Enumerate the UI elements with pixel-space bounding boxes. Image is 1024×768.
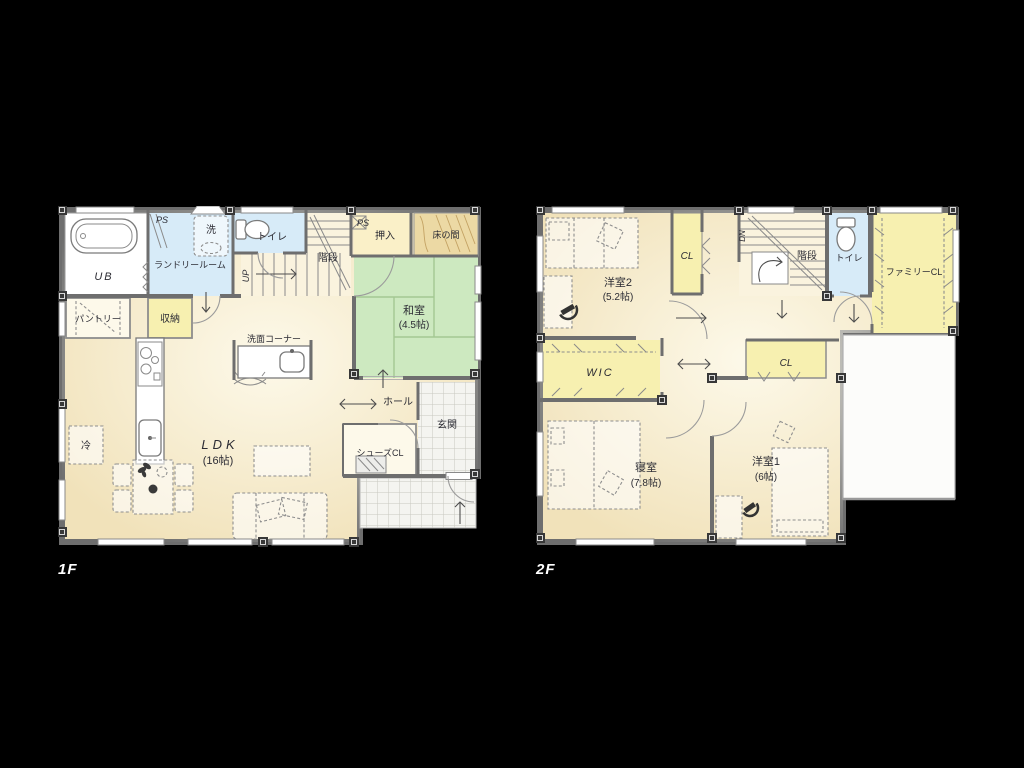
- toilet-bowl-2f: [837, 218, 855, 251]
- label-tokonoma: 床の間: [432, 229, 459, 240]
- label-toilet-1f: トイレ: [257, 232, 287, 243]
- label-laundry: ランドリールーム: [154, 260, 226, 270]
- label-ps-right: PS: [357, 218, 369, 228]
- living-table: [254, 446, 310, 476]
- label-ps-left: PS: [156, 215, 168, 225]
- label-ldk: LDK: [201, 437, 238, 452]
- floorplan-image: UB PS 洗 ランドリールーム トイレ 階段 UP PS 押入 床の間 和室 …: [0, 0, 1024, 768]
- sofa: [233, 493, 327, 539]
- label-washitsu-size: (4.5帖): [399, 318, 430, 331]
- roof-area: [843, 335, 955, 499]
- label-cl-center: CL: [780, 358, 793, 369]
- label-stairs-dir-2f: DN: [738, 230, 747, 242]
- label-yoshitsu1-size: (6帖): [755, 470, 777, 483]
- label-wic: WIC: [586, 367, 613, 379]
- label-washer: 洗: [206, 224, 216, 236]
- label-yoshitsu2-size: (5.2帖): [603, 290, 634, 303]
- label-stairs-2f: 階段: [797, 249, 817, 262]
- floor-tag-1f: 1F: [58, 561, 78, 578]
- stairs-upper-1f: [306, 213, 351, 253]
- label-shinshitsu-size: (7.8帖): [631, 476, 662, 489]
- label-oshiire: 押入: [375, 229, 395, 242]
- label-genkan: 玄関: [437, 418, 457, 431]
- label-washitsu: 和室: [403, 303, 425, 317]
- washing-machine: [194, 216, 228, 256]
- label-ldk-size: (16帖): [203, 454, 234, 467]
- label-family-cl: ファミリーCL: [886, 267, 943, 277]
- label-yoshitsu2: 洋室2: [604, 275, 632, 289]
- label-shinshitsu: 寝室: [635, 460, 657, 474]
- label-yoshitsu1: 洋室1: [752, 454, 780, 468]
- label-stairs-1f: 階段: [318, 251, 338, 264]
- label-shoes-cl: シューズCL: [356, 447, 403, 458]
- label-hall: ホール: [383, 396, 413, 408]
- label-toilet-2f: トイレ: [835, 253, 862, 263]
- label-pantry: パントリー: [75, 314, 120, 324]
- label-ub: UB: [94, 271, 113, 283]
- floor-tag-2f: 2F: [536, 561, 556, 578]
- label-cl-north: CL: [681, 251, 694, 262]
- floor-plan-2f: 洋室2 (5.2帖) CL 階段 DN トイレ ファミリーCL WIC CL 寝…: [536, 206, 966, 551]
- bathtub: [71, 219, 137, 253]
- kitchen-counter: [136, 338, 164, 464]
- room-washitsu: [354, 256, 478, 378]
- label-fridge: 冷: [81, 439, 91, 452]
- label-storage: 収納: [160, 312, 180, 325]
- label-stairs-dir-1f: UP: [241, 270, 251, 283]
- master-bed: [548, 421, 640, 509]
- floor-plan-1f: UB PS 洗 ランドリールーム トイレ 階段 UP PS 押入 床の間 和室 …: [58, 206, 488, 551]
- label-vanity: 洗面コーナー: [247, 333, 301, 344]
